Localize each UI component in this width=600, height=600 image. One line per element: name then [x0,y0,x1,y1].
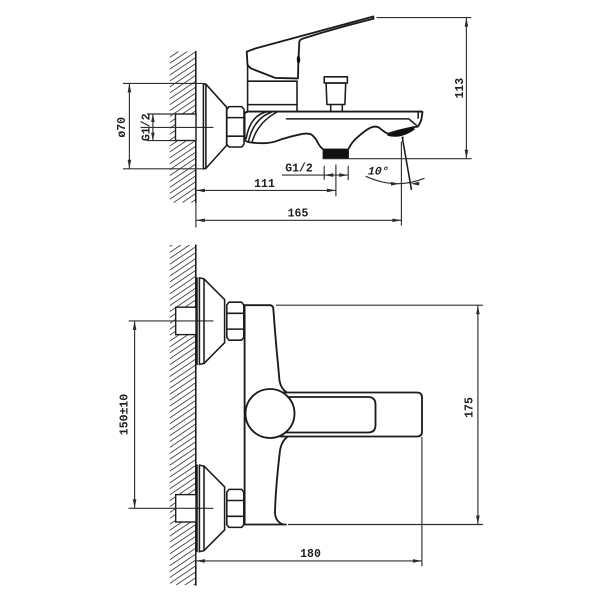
svg-text:180: 180 [300,548,321,561]
svg-text:111: 111 [254,178,275,191]
svg-text:113: 113 [454,78,467,99]
svg-text:165: 165 [288,208,309,221]
svg-text:ø70: ø70 [116,117,129,138]
svg-text:G1/2: G1/2 [285,163,313,176]
svg-text:G1/2: G1/2 [140,113,153,141]
svg-text:150±10: 150±10 [119,394,132,436]
svg-text:175: 175 [463,397,476,418]
svg-text:10°: 10° [366,165,390,179]
